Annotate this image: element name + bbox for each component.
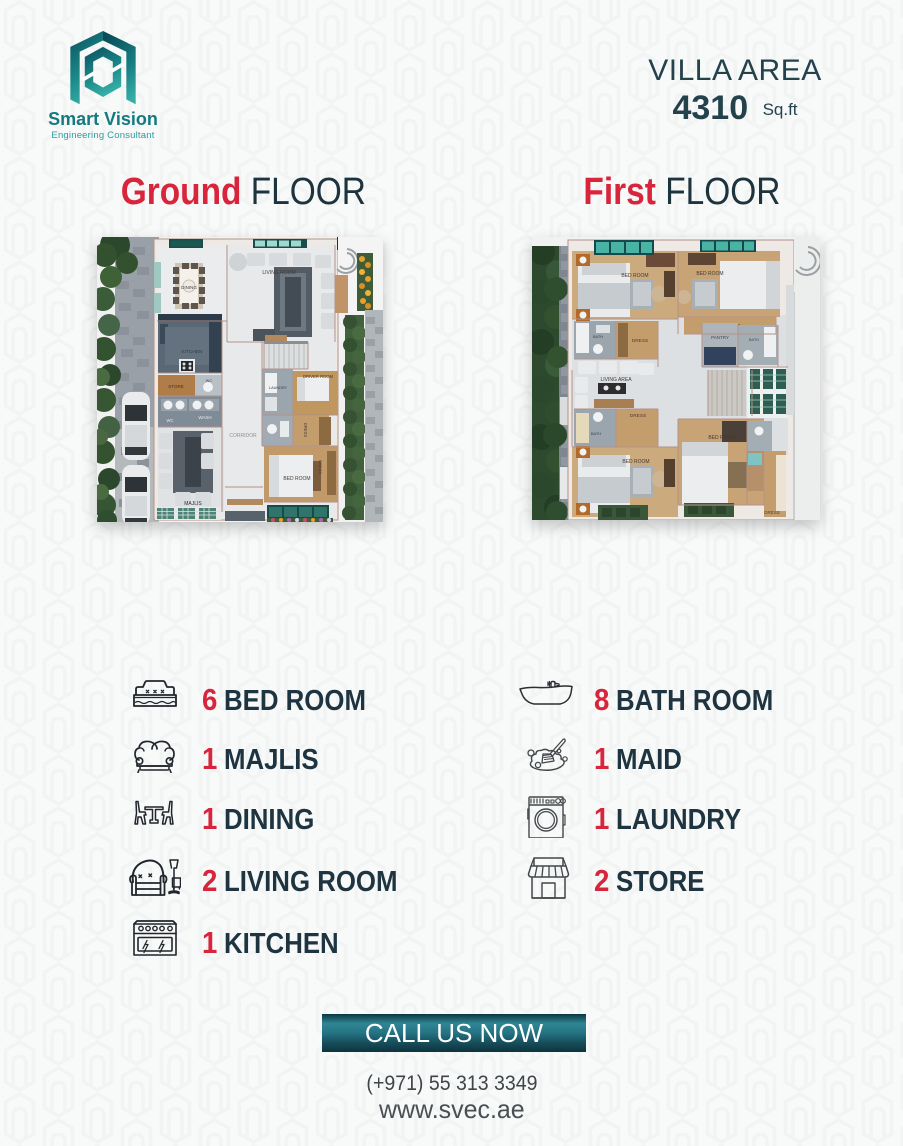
svg-text:DINING: DINING [181, 285, 197, 290]
svg-text:BATH: BATH [749, 337, 759, 342]
svg-text:BED ROOM: BED ROOM [696, 271, 723, 277]
svg-text:STORE: STORE [168, 384, 183, 389]
svg-text:BED ROOM: BED ROOM [622, 459, 649, 465]
svg-text:WC: WC [206, 378, 213, 383]
svg-text:CORRIDOR: CORRIDOR [229, 433, 257, 439]
svg-text:DRESS: DRESS [632, 338, 649, 344]
svg-text:DRESS: DRESS [764, 510, 780, 515]
svg-text:DRESS: DRESS [318, 460, 323, 474]
svg-text:WC: WC [167, 418, 174, 423]
svg-text:LIVING ROOM: LIVING ROOM [262, 270, 295, 276]
svg-text:LAUNDRY: LAUNDRY [269, 386, 288, 390]
svg-text:DRESS: DRESS [303, 423, 308, 438]
svg-text:BED ROOM: BED ROOM [708, 435, 735, 441]
svg-text:DRIVER ROOM: DRIVER ROOM [303, 374, 334, 379]
svg-text:BED ROOM: BED ROOM [621, 273, 648, 279]
svg-text:BATH: BATH [593, 334, 603, 339]
svg-text:KITCHEN: KITCHEN [181, 349, 203, 355]
svg-text:WASH: WASH [198, 415, 211, 420]
svg-text:MAJLIS: MAJLIS [184, 501, 202, 507]
svg-text:LIVING AREA: LIVING AREA [600, 377, 632, 383]
svg-text:DRESS: DRESS [630, 413, 647, 419]
svg-text:PANTRY: PANTRY [711, 335, 729, 340]
svg-text:BATH: BATH [591, 431, 601, 436]
svg-text:BED ROOM: BED ROOM [283, 476, 310, 482]
